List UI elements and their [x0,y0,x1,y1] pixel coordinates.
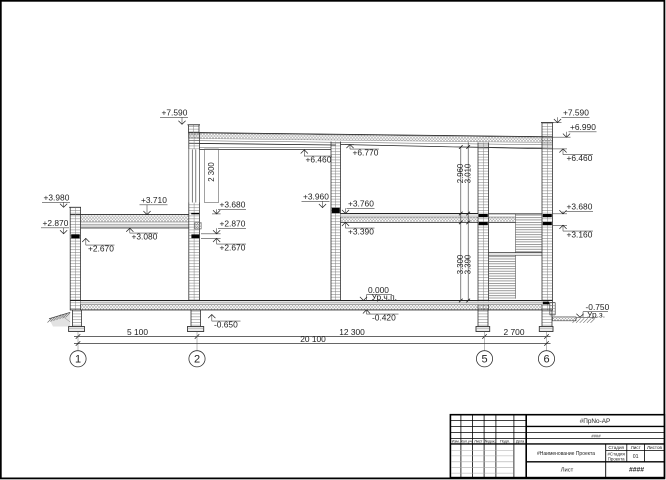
svg-text:5 100: 5 100 [127,327,148,337]
svg-text:Кол.уч.: Кол.уч. [461,439,473,444]
svg-text:+3.710: +3.710 [141,195,167,205]
svg-text:+3.760: +3.760 [348,199,374,209]
svg-text:+2.870: +2.870 [43,218,69,228]
svg-text:+3.680: +3.680 [220,200,246,210]
svg-text:3.390: 3.390 [464,254,473,274]
svg-text:+3.960: +3.960 [303,192,329,202]
svg-text:Ур.з.: Ур.з. [587,310,605,320]
svg-text:Проекта: Проекта [608,456,625,461]
svg-text:Дата: Дата [516,439,525,444]
svg-text:####: #### [591,433,601,438]
svg-text:Стадия: Стадия [608,445,624,450]
svg-text:2 700: 2 700 [504,327,525,337]
svg-text:Ур.ч.п.: Ур.ч.п. [372,292,397,302]
svg-text:+3.680: +3.680 [567,202,593,212]
svg-text:Лист: Лист [474,439,482,444]
svg-text:Лист: Лист [631,445,642,450]
svg-text:####: #### [629,467,644,474]
svg-text:Лист: Лист [561,468,574,474]
svg-text:20 100: 20 100 [300,334,326,344]
svg-text:2: 2 [194,354,200,366]
svg-text:Подп.: Подп. [500,439,510,444]
svg-text:+3.980: +3.980 [44,193,70,203]
svg-text:5: 5 [481,354,487,366]
svg-text:Листов: Листов [647,445,662,450]
svg-text:3.010: 3.010 [464,163,473,183]
svg-text:12 300: 12 300 [339,327,365,337]
svg-text:#ПрNo-АР: #ПрNo-АР [580,418,611,425]
svg-text:2 300: 2 300 [207,162,216,182]
svg-text:+2.870: +2.870 [220,219,246,229]
svg-text:+7.590: +7.590 [162,108,188,118]
svg-text:+6.990: +6.990 [570,122,596,132]
svg-text:#Наименование Проекта: #Наименование Проекта [537,451,595,457]
svg-text:Изм.: Изм. [452,439,460,444]
svg-text:01: 01 [633,454,639,460]
svg-text:1: 1 [75,354,81,366]
svg-text:6: 6 [543,354,549,366]
svg-text:№док.: №док. [485,439,496,444]
svg-text:+7.590: +7.590 [563,108,589,118]
